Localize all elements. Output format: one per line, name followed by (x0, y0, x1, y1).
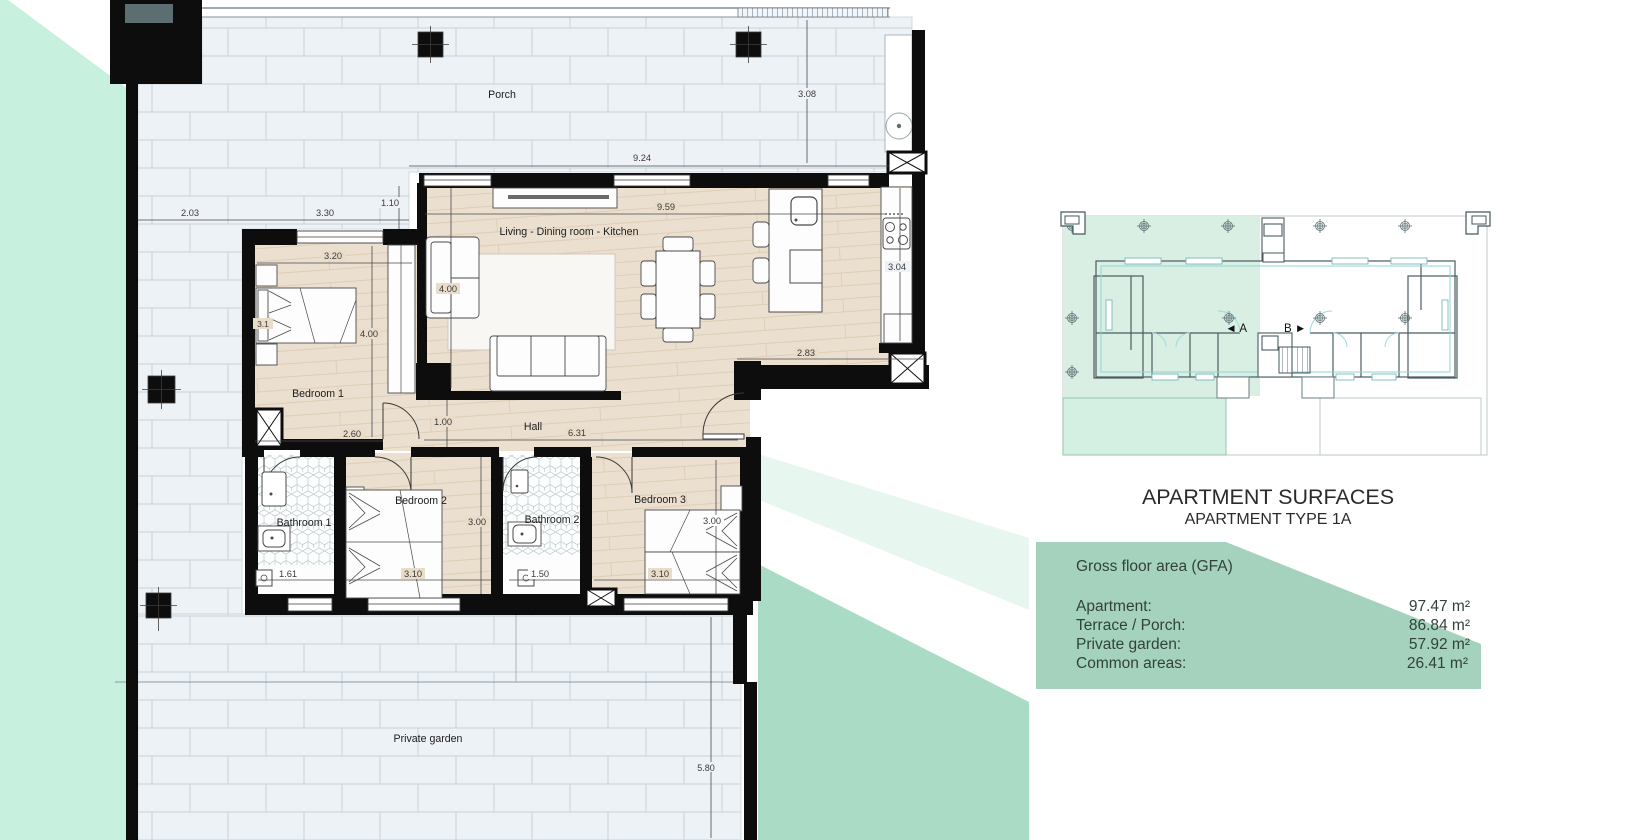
svg-text:5.80: 5.80 (697, 763, 715, 773)
svg-text:Common areas:: Common areas: (1076, 655, 1186, 672)
svg-text:3.00: 3.00 (468, 517, 486, 527)
svg-text:3.1: 3.1 (257, 319, 269, 329)
svg-text:57.92 m²: 57.92 m² (1409, 636, 1470, 653)
svg-text:B ►: B ► (1284, 323, 1306, 335)
svg-text:3.30: 3.30 (316, 208, 334, 218)
svg-text:1.50: 1.50 (531, 569, 549, 579)
svg-text:Private garden:: Private garden: (1076, 636, 1181, 653)
svg-text:86.84 m²: 86.84 m² (1409, 617, 1470, 634)
svg-text:Bathroom 1: Bathroom 1 (277, 517, 332, 529)
svg-text:APARTMENT SURFACES: APARTMENT SURFACES (1142, 485, 1394, 509)
svg-text:Bathroom 2: Bathroom 2 (525, 514, 580, 526)
svg-text:Terrace / Porch:: Terrace / Porch: (1076, 617, 1185, 634)
svg-text:1.10: 1.10 (381, 198, 399, 208)
svg-text:26.41 m²: 26.41 m² (1407, 655, 1468, 672)
svg-text:Hall: Hall (524, 421, 542, 433)
svg-text:Bedroom 2: Bedroom 2 (395, 495, 447, 507)
svg-text:3.08: 3.08 (798, 89, 816, 99)
svg-text:2.60: 2.60 (343, 429, 361, 439)
svg-text:Gross floor area (GFA): Gross floor area (GFA) (1076, 558, 1233, 575)
svg-text:Private garden: Private garden (394, 733, 463, 745)
svg-text:3.10: 3.10 (404, 569, 422, 579)
svg-text:Apartment:: Apartment: (1076, 598, 1152, 615)
svg-text:3.10: 3.10 (651, 569, 669, 579)
svg-text:9.24: 9.24 (633, 153, 651, 163)
svg-text:97.47 m²: 97.47 m² (1409, 598, 1470, 615)
svg-text:2.03: 2.03 (181, 208, 199, 218)
svg-text:3.00: 3.00 (703, 516, 721, 526)
svg-text:APARTMENT TYPE 1A: APARTMENT TYPE 1A (1185, 511, 1352, 528)
svg-text:1.00: 1.00 (434, 417, 452, 427)
svg-text:3.04: 3.04 (888, 262, 906, 272)
svg-text:1.61: 1.61 (279, 569, 297, 579)
svg-text:Porch: Porch (488, 89, 516, 101)
svg-text:2.83: 2.83 (797, 348, 815, 358)
svg-text:Living - Dining room - Kitchen: Living - Dining room - Kitchen (500, 226, 639, 238)
svg-text:3.20: 3.20 (324, 251, 342, 261)
svg-text:4.00: 4.00 (439, 284, 457, 294)
svg-text:Bedroom 1: Bedroom 1 (292, 388, 344, 400)
svg-text:9.59: 9.59 (657, 202, 675, 212)
svg-text:4.00: 4.00 (360, 329, 378, 339)
svg-text:Bedroom 3: Bedroom 3 (634, 494, 686, 506)
svg-text:6.31: 6.31 (568, 428, 586, 438)
